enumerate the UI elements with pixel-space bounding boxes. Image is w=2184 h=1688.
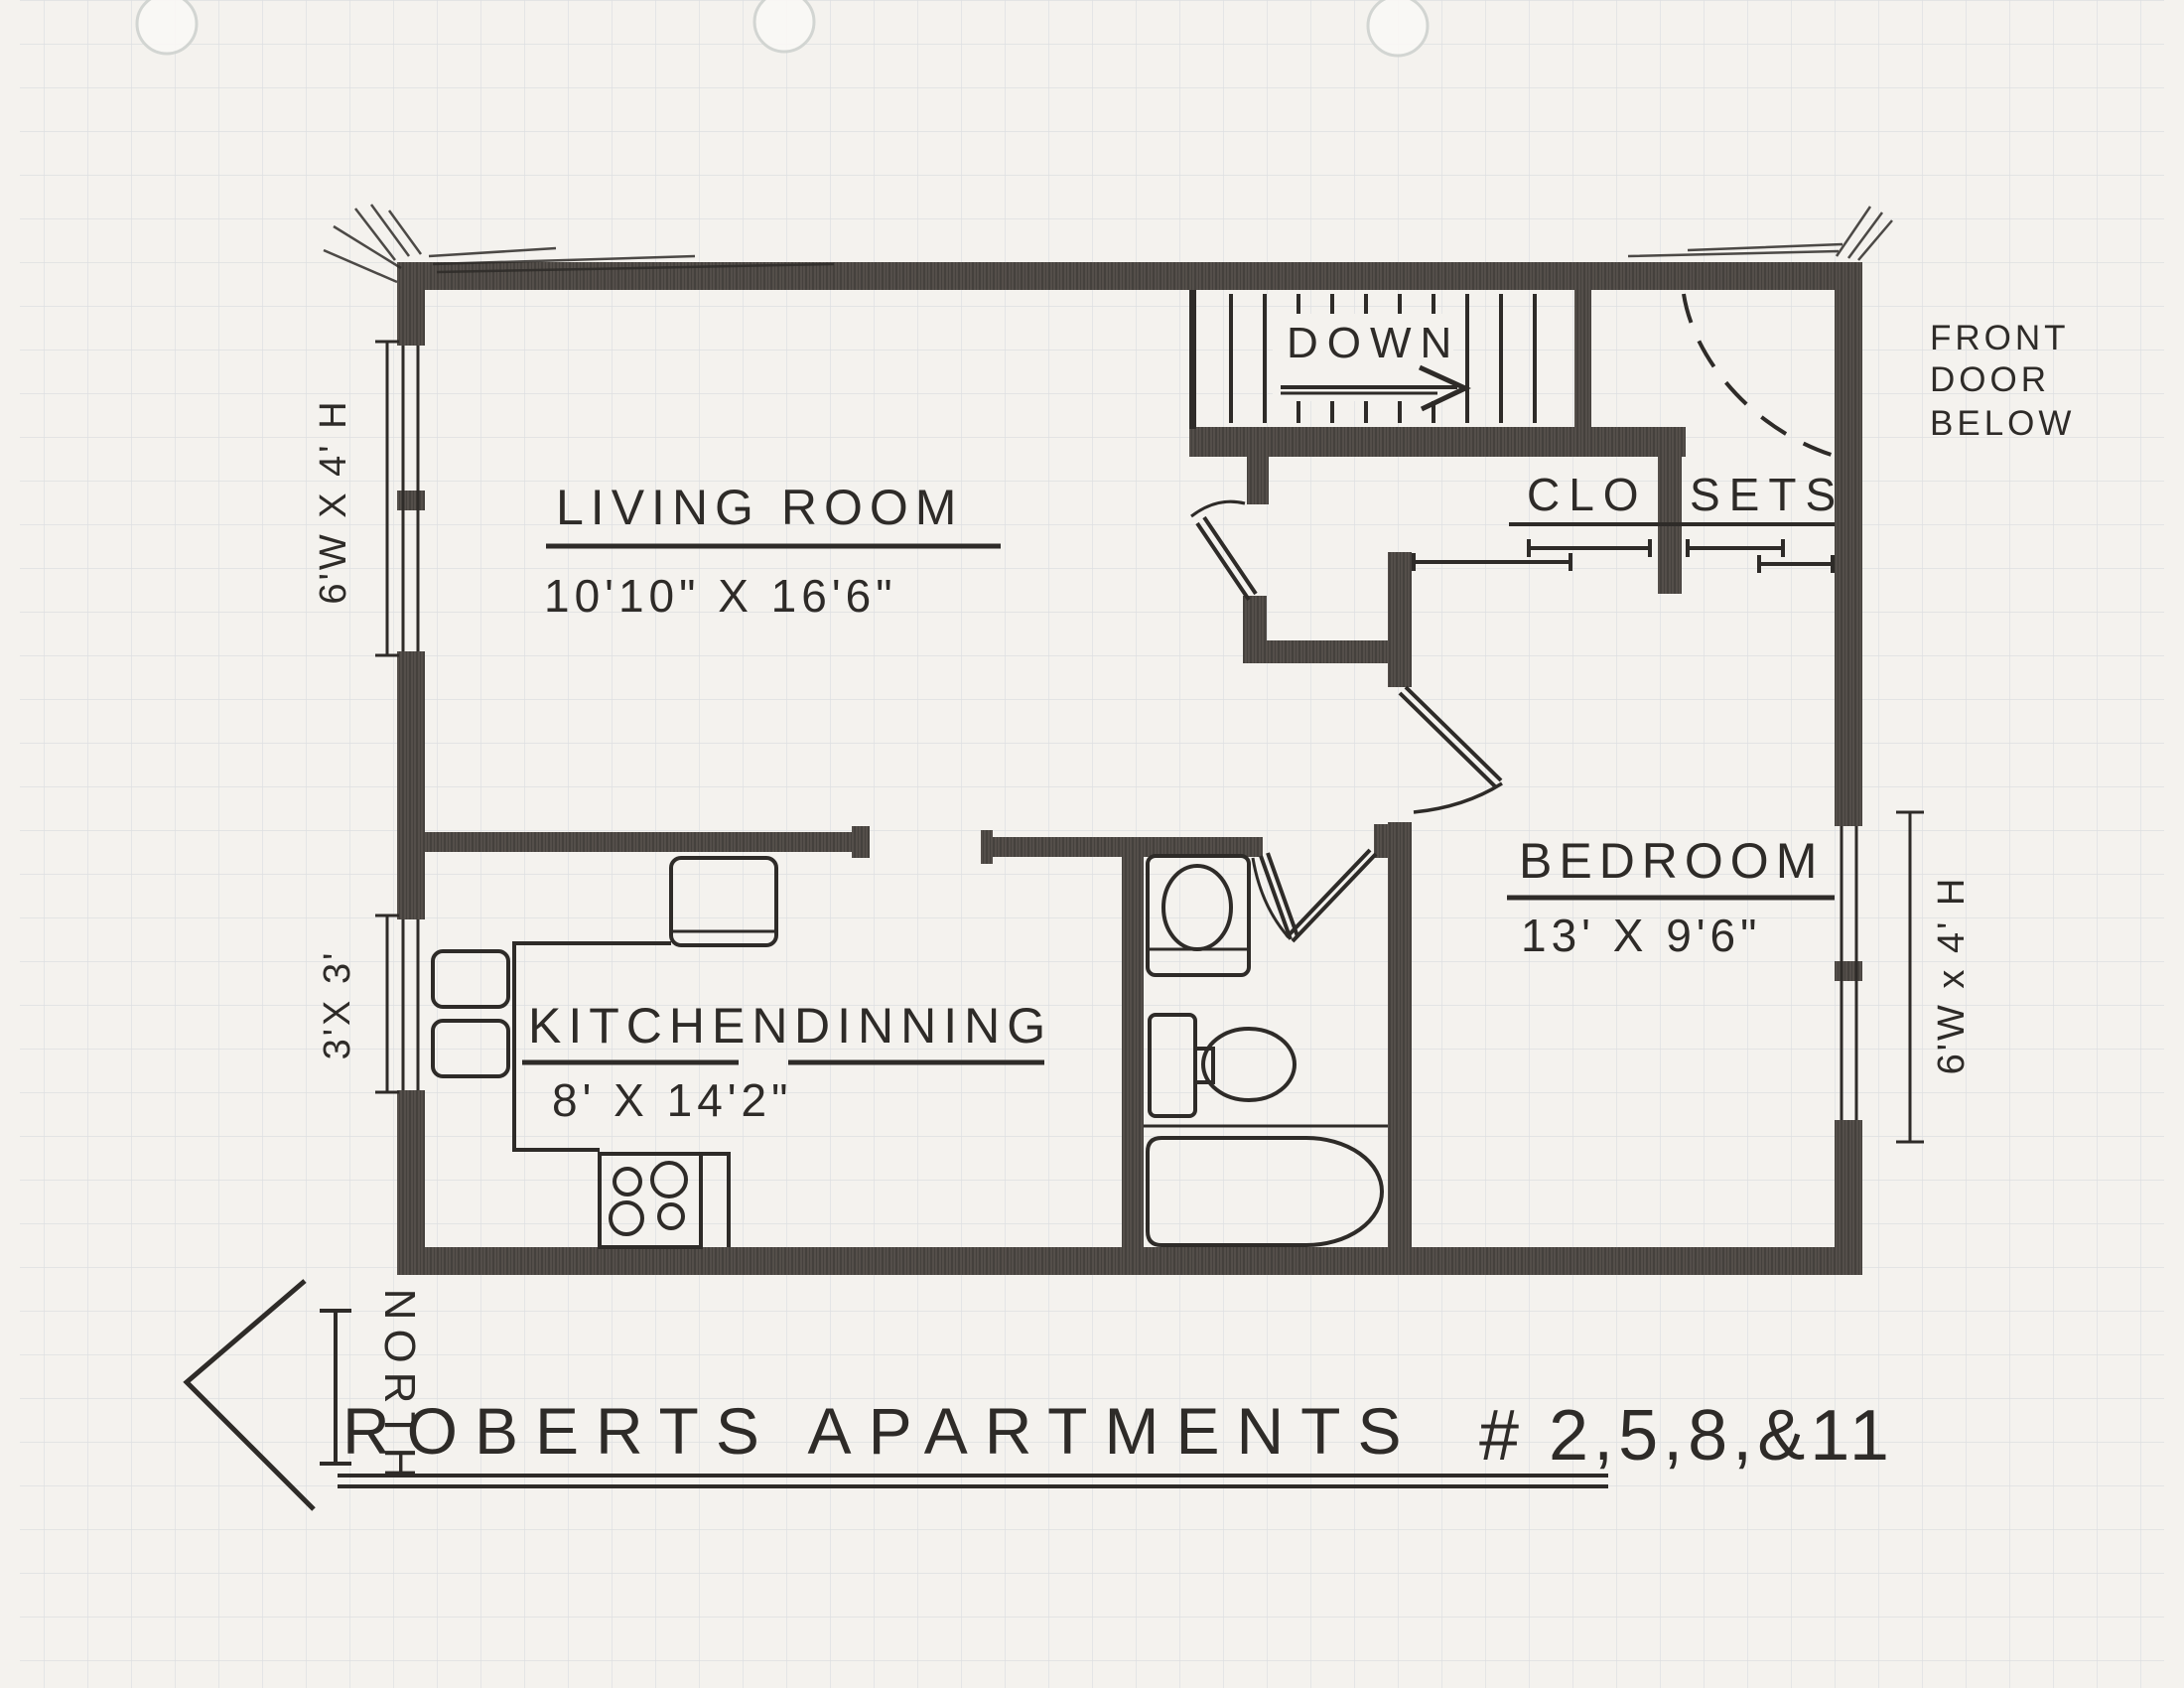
kitchen-label: KITCHEN (528, 998, 794, 1054)
wall-hall-south (1243, 640, 1404, 663)
window-label-right-large: 6'W x 4' H (1931, 876, 1973, 1075)
floor-plan-drawing: DOWN CLO SETS (0, 0, 2184, 1688)
window-label-left-small: 3'X 3' (317, 950, 358, 1060)
wall-understair-stub (1247, 455, 1269, 504)
sheet-title: ROBERTS APARTMENTS (342, 1394, 1419, 1468)
wall-exterior-west (397, 262, 425, 346)
wall-exterior-south (397, 1247, 1862, 1275)
kitchen-dimensions: 8' X 14'2" (552, 1074, 792, 1126)
wall-stair-south (1189, 427, 1686, 457)
closet-label-right: SETS (1690, 469, 1844, 520)
wall-bathroom-bedroom (1388, 822, 1412, 1247)
punch-hole (1368, 0, 1428, 56)
closet-label-left: CLO (1527, 469, 1648, 520)
stairs-down-label: DOWN (1287, 319, 1460, 367)
wall-hall-east (1388, 552, 1412, 687)
wall-end-cap (981, 830, 993, 864)
window-mullion (1835, 961, 1862, 981)
wall-livingroom-kitchen (421, 832, 870, 852)
wall-end-cap (852, 826, 870, 858)
bedroom-dimensions: 13' X 9'6" (1521, 910, 1761, 961)
dining-label: DINNING (794, 998, 1052, 1054)
wall-bathroom-west (1122, 837, 1144, 1247)
punch-hole (754, 0, 814, 52)
wall-stair-west-thin (1189, 290, 1196, 429)
living-room-label: LIVING ROOM (556, 480, 963, 535)
window-label-left-large: 6'W X 4' H (313, 398, 354, 604)
front-door-note-line2: DOOR (1930, 360, 2050, 399)
bedroom-label: BEDROOM (1519, 833, 1824, 889)
wall-exterior-north (397, 262, 1862, 290)
floor-plan-sheet: DOWN CLO SETS (0, 0, 2184, 1688)
front-door-note-line3: BELOW (1930, 404, 2075, 443)
sheet-title-units: # 2,5,8,&11 (1479, 1396, 1894, 1476)
living-room-dimensions: 10'10" X 16'6" (544, 570, 897, 622)
wall-stair-east (1574, 290, 1591, 429)
window-mullion (397, 491, 425, 510)
punch-hole (137, 0, 197, 54)
wall-exterior-east (1835, 1120, 1862, 1275)
wall-exterior-east (1835, 262, 1862, 826)
wall-exterior-west (397, 651, 425, 919)
wall-exterior-west (397, 1090, 425, 1275)
front-door-note-line1: FRONT (1930, 319, 2070, 357)
